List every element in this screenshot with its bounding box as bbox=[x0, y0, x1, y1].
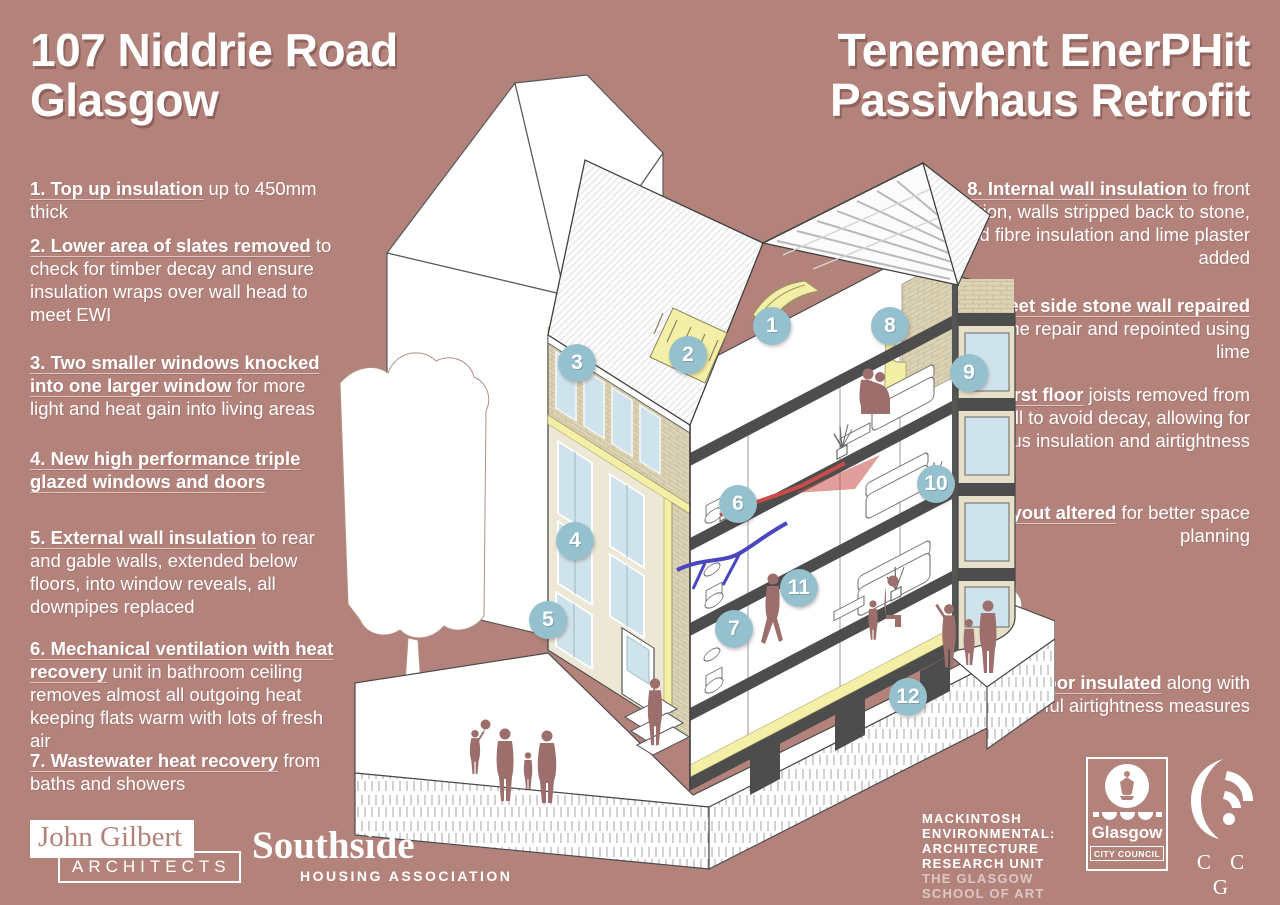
ccg-mark-icon bbox=[1189, 757, 1259, 843]
bow-window bbox=[952, 277, 1015, 653]
glasgow-crest-icon bbox=[1105, 764, 1149, 808]
glasgow-name: Glasgow bbox=[1092, 823, 1163, 843]
annotation-2: 2. Lower area of slates removed to check… bbox=[30, 235, 340, 327]
ccg-name: C C G bbox=[1186, 850, 1262, 900]
southside-name: Southside bbox=[252, 826, 512, 865]
john-gilbert-name: John Gilbert bbox=[30, 820, 194, 858]
callout-marker-12: 12 bbox=[889, 678, 927, 716]
annotation-3: 3. Two smaller windows knocked into one … bbox=[30, 352, 340, 421]
mearu-line: RESEARCH UNIT bbox=[922, 856, 1056, 871]
callout-marker-4: 4 bbox=[556, 522, 594, 560]
glasgow-city-council-label: CITY COUNCIL bbox=[1090, 846, 1164, 861]
tree-outline bbox=[340, 353, 489, 715]
mearu-logo: MACKINTOSH ENVIRONMENTAL: ARCHITECTURE R… bbox=[922, 811, 1056, 901]
illustration: 123456789101112 bbox=[325, 65, 1055, 905]
callout-marker-5: 5 bbox=[529, 601, 567, 639]
southside-housing-logo: Southside HOUSING ASSOCIATION bbox=[252, 826, 512, 884]
annotation-6: 6. Mechanical ventilation with heat reco… bbox=[30, 638, 340, 753]
callout-marker-9: 9 bbox=[950, 354, 988, 392]
annotation-1: 1. Top up insulation up to 450mm thick bbox=[30, 178, 340, 224]
annotation-4: 4. New high performance triple glazed wi… bbox=[30, 448, 340, 494]
mearu-line: ARCHITECTURE bbox=[922, 841, 1056, 856]
callout-marker-10: 10 bbox=[917, 465, 955, 503]
callout-marker-11: 11 bbox=[780, 569, 818, 607]
poster-canvas: 107 Niddrie Road Glasgow Tenement EnerPH… bbox=[0, 0, 1280, 905]
mearu-subline: SCHOOL OF ART bbox=[922, 886, 1056, 901]
ccg-logo: C C G bbox=[1186, 757, 1262, 900]
southside-sub: HOUSING ASSOCIATION bbox=[300, 868, 512, 884]
mearu-line: ENVIRONMENTAL: bbox=[922, 826, 1056, 841]
annotation-5: 5. External wall insulation to rear and … bbox=[30, 527, 340, 619]
glasgow-city-council-logo: Glasgow CITY COUNCIL bbox=[1086, 757, 1168, 871]
callout-marker-6: 6 bbox=[719, 485, 757, 523]
mearu-subline: THE GLASGOW bbox=[922, 871, 1056, 886]
john-gilbert-architects-logo: John Gilbert ARCHITECTS bbox=[30, 820, 240, 884]
callout-marker-2: 2 bbox=[669, 336, 707, 374]
glasgow-scallop-band bbox=[1093, 812, 1162, 820]
mearu-line: MACKINTOSH bbox=[922, 811, 1056, 826]
callout-marker-7: 7 bbox=[715, 610, 753, 648]
callout-marker-8: 8 bbox=[871, 307, 909, 345]
callout-marker-3: 3 bbox=[558, 344, 596, 382]
annotation-7: 7. Wastewater heat recovery from baths a… bbox=[30, 750, 340, 796]
callout-marker-1: 1 bbox=[753, 307, 791, 345]
